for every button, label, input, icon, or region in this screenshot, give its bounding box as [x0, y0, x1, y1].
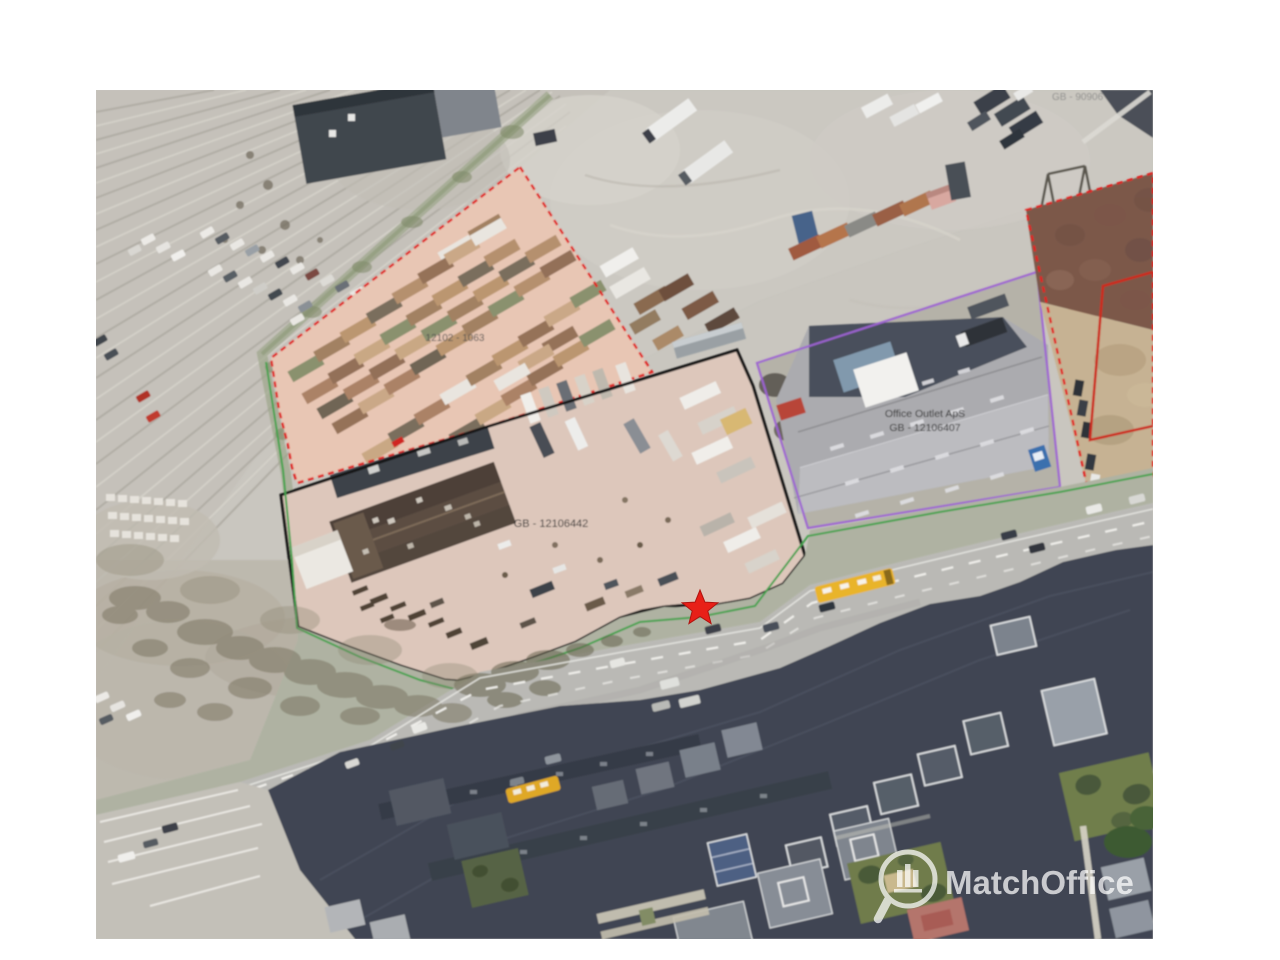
svg-text:MatchOffice: MatchOffice	[945, 864, 1134, 901]
svg-text:GB - 12106442: GB - 12106442	[514, 518, 589, 530]
svg-text:12102 - 1063: 12102 - 1063	[426, 333, 485, 344]
svg-text:Office Outlet ApS: Office Outlet ApS	[885, 408, 965, 420]
svg-text:GB - 12106407: GB - 12106407	[889, 422, 960, 434]
svg-text:GB - 90906: GB - 90906	[1052, 92, 1104, 103]
